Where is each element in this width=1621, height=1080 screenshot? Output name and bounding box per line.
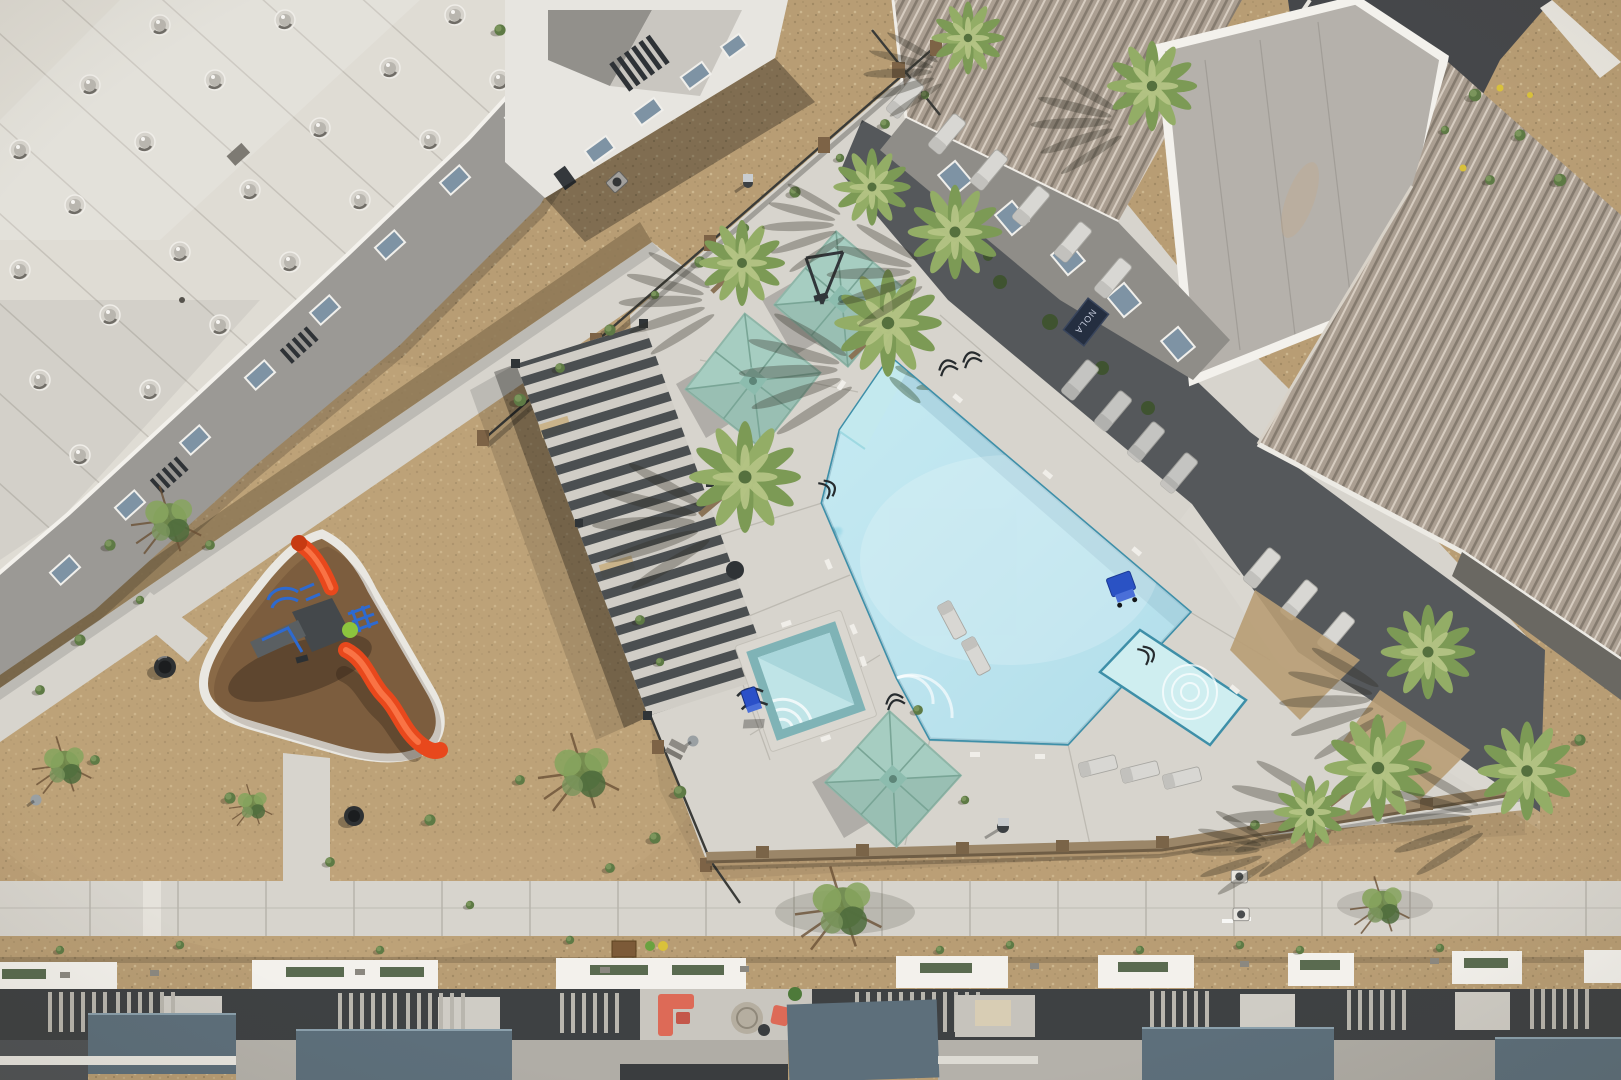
aerial-photo: NOLA [0, 0, 1621, 1080]
vignette [0, 0, 1621, 1080]
aerial-photo-canvas: NOLA [0, 0, 1621, 1080]
